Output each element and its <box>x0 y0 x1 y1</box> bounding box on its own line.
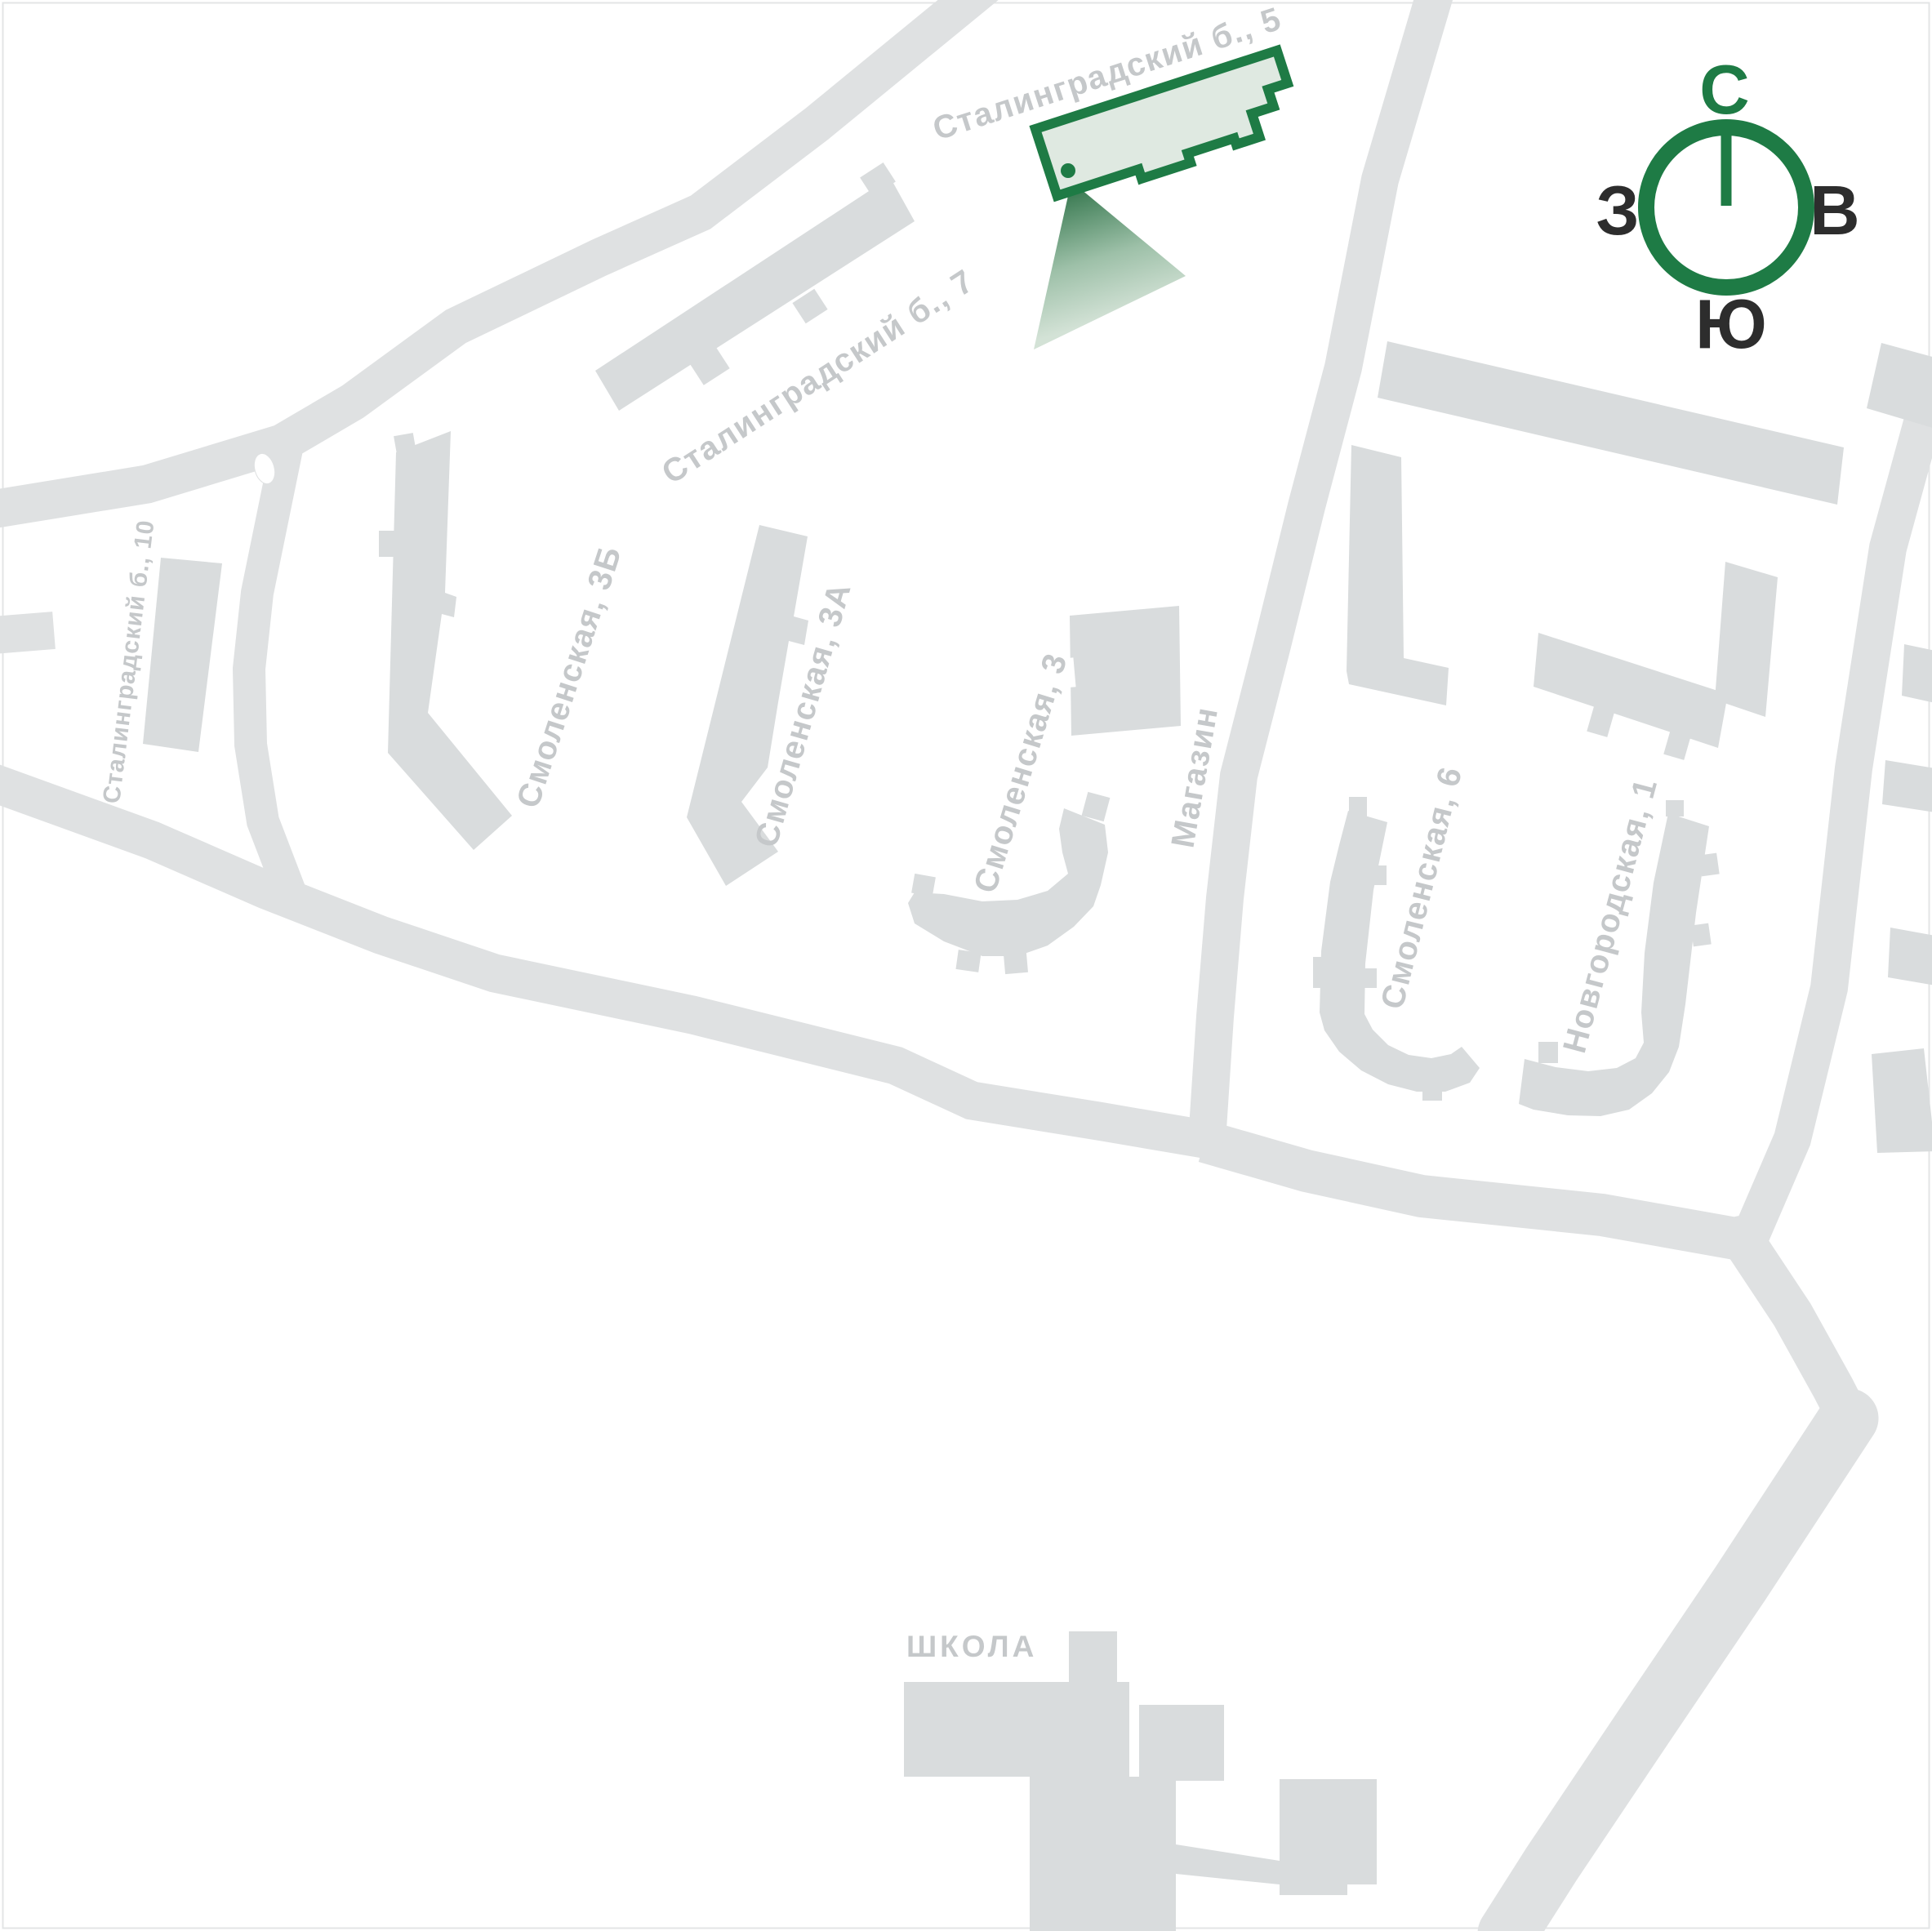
svg-text:В: В <box>1810 172 1859 250</box>
svg-text:С: С <box>1699 51 1749 129</box>
svg-text:ШКОЛА: ШКОЛА <box>906 1630 1037 1663</box>
svg-text:З: З <box>1596 172 1639 250</box>
svg-text:Ю: Ю <box>1695 286 1767 363</box>
